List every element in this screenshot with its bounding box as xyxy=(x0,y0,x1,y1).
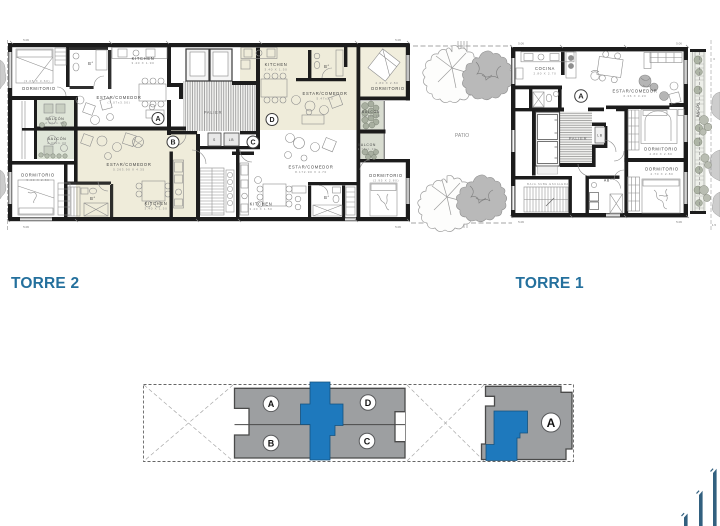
svg-text:5.06: 5.06 xyxy=(23,38,29,42)
svg-text:3.40 X 1.50: 3.40 X 1.50 xyxy=(144,207,167,211)
svg-text:(3.05 X 3.60): (3.05 X 3.60) xyxy=(24,79,50,83)
svg-text:DORMITORIO: DORMITORIO xyxy=(644,147,678,152)
svg-text:A: A xyxy=(547,416,556,430)
svg-text:5.06: 5.06 xyxy=(518,220,524,224)
svg-text:B°: B° xyxy=(324,64,330,69)
svg-text:KITCHEN: KITCHEN xyxy=(265,62,288,67)
svg-text:2.50x1.30: 2.50x1.30 xyxy=(45,121,64,125)
svg-text:LB: LB xyxy=(229,138,235,142)
svg-text:2.80 X 2.80: 2.80 X 2.80 xyxy=(375,81,398,85)
svg-text:(2.95 X 2.80): (2.95 X 2.80) xyxy=(373,179,399,183)
svg-text:S: S xyxy=(213,138,216,142)
svg-text:B°: B° xyxy=(88,61,94,66)
svg-text:(7.07x3.50): (7.07x3.50) xyxy=(108,101,131,105)
svg-text:ESTAR/COMEDOR: ESTAR/COMEDOR xyxy=(97,95,142,100)
svg-text:3.40 X 1.90: 3.40 X 1.90 xyxy=(131,61,154,65)
svg-text:B: B xyxy=(170,140,175,147)
svg-text:2.80 X 2.70: 2.80 X 2.70 xyxy=(533,72,556,76)
svg-text:1.75x1.30: 1.75x1.30 xyxy=(362,114,381,118)
svg-text:5.47x3.0: 5.47x3.0 xyxy=(316,97,333,101)
svg-text:A: A xyxy=(268,399,275,409)
svg-text:LB: LB xyxy=(597,134,603,138)
svg-text:PATIO: PATIO xyxy=(455,133,469,139)
svg-text:1.75x1.30: 1.75x1.30 xyxy=(358,147,377,151)
svg-text:DORMITORIO: DORMITORIO xyxy=(371,86,405,91)
svg-text:PALIER: PALIER xyxy=(204,110,222,115)
svg-text:1.5: 1.5 xyxy=(712,223,717,227)
svg-text:DORMITORIO: DORMITORIO xyxy=(22,86,56,91)
svg-text:BAJA·SUBE·ESCALERA: BAJA·SUBE·ESCALERA xyxy=(527,182,569,186)
svg-text:5.263.90 X 4.35: 5.263.90 X 4.35 xyxy=(113,168,145,172)
svg-text:5.06: 5.06 xyxy=(395,225,401,229)
svg-text:3.40 X 1.50: 3.40 X 1.50 xyxy=(249,207,272,211)
svg-text:5.06: 5.06 xyxy=(23,225,29,229)
svg-text:DORMITORIO: DORMITORIO xyxy=(645,167,679,172)
svg-text:5.60 X 2.80: 5.60 X 2.80 xyxy=(26,178,49,182)
svg-text:D: D xyxy=(269,117,274,124)
svg-text:D: D xyxy=(365,398,372,408)
svg-text:2.00x1.30: 2.00x1.30 xyxy=(47,141,66,145)
svg-text:ESTAR/COMEDOR: ESTAR/COMEDOR xyxy=(289,165,334,170)
svg-text:C: C xyxy=(250,140,255,147)
svg-text:A: A xyxy=(155,116,160,123)
svg-text:ESTAR/COMEDOR: ESTAR/COMEDOR xyxy=(303,91,348,96)
svg-text:DORMITORIO: DORMITORIO xyxy=(369,173,403,178)
svg-text:KITCHEN: KITCHEN xyxy=(145,201,168,206)
svg-text:6.36 X 3.20: 6.36 X 3.20 xyxy=(623,94,646,98)
svg-text:5.06: 5.06 xyxy=(676,220,682,224)
svg-text:DORMITORIO: DORMITORIO xyxy=(21,173,55,178)
svg-text:5.06: 5.06 xyxy=(676,42,682,46)
svg-text:B: B xyxy=(268,438,275,448)
svg-text:A: A xyxy=(578,92,584,101)
svg-text:2.70 X 2.80: 2.70 X 2.80 xyxy=(650,172,673,176)
svg-text:PALIER: PALIER xyxy=(569,136,587,141)
svg-text:TORRE 1: TORRE 1 xyxy=(516,275,584,292)
svg-text:8.172.90 X 4.70: 8.172.90 X 4.70 xyxy=(295,170,327,174)
svg-text:2.80 X 2.80: 2.80 X 2.80 xyxy=(649,152,672,156)
svg-text:ESTAR/COMEDOR: ESTAR/COMEDOR xyxy=(107,162,152,167)
svg-text:ESTAR/COMEDOR: ESTAR/COMEDOR xyxy=(613,89,658,94)
svg-text:B°: B° xyxy=(90,196,96,201)
svg-text:5.06: 5.06 xyxy=(518,42,524,46)
svg-text:C: C xyxy=(364,436,371,446)
svg-text:AB°: AB° xyxy=(604,179,612,183)
svg-text:5.06: 5.06 xyxy=(395,38,401,42)
svg-text:B°: B° xyxy=(324,195,330,200)
svg-text:3.40 X 1.50: 3.40 X 1.50 xyxy=(264,68,287,72)
svg-text:KITCHEN: KITCHEN xyxy=(250,202,273,207)
svg-text:TORRE 2: TORRE 2 xyxy=(11,275,79,292)
svg-text:COCINA: COCINA xyxy=(535,66,555,71)
